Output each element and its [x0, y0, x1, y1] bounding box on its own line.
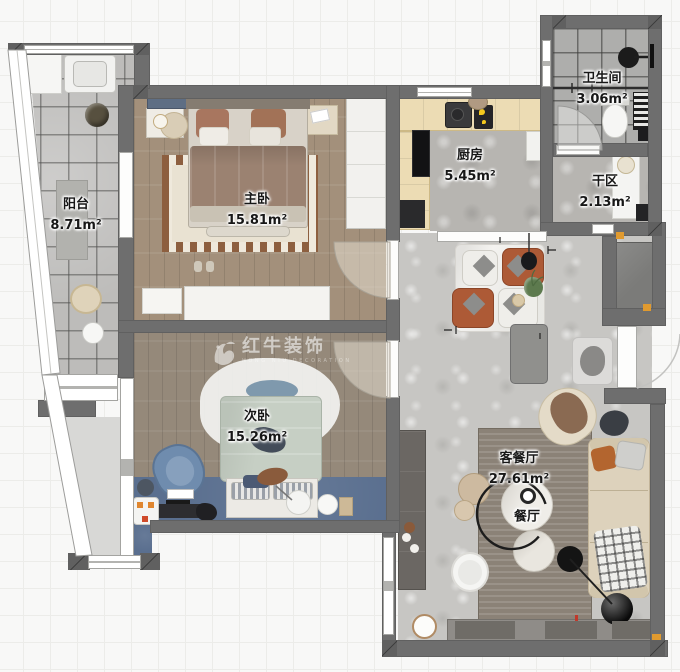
shower-drain	[618, 47, 639, 68]
kitchen-base-unit	[398, 200, 425, 228]
coffee-cup-2	[410, 544, 419, 553]
balcony-slider-door[interactable]	[119, 152, 133, 238]
label-kitchen: 厨房 5.45m²	[444, 145, 495, 187]
label-balcony: 阳台 8.71m²	[50, 194, 101, 236]
master-headboard	[186, 98, 310, 109]
window-balcony-sill	[44, 374, 118, 401]
nesting-table-small	[454, 500, 475, 521]
media-cabinet	[398, 430, 426, 590]
lounge-chair-inner	[458, 560, 482, 585]
label-living-name: 客餐厅	[489, 448, 549, 469]
laundry-sink-basin	[73, 61, 107, 87]
second-papers	[167, 489, 194, 499]
master-pillow-white-left	[199, 127, 229, 146]
dining-centerpiece-plant	[524, 277, 543, 297]
sofa-seat-line	[590, 490, 648, 491]
dining-plate	[512, 294, 525, 307]
laundry-cabinet	[16, 54, 62, 94]
second-ball-lamp	[317, 494, 338, 515]
window-bath-left	[542, 40, 551, 87]
wall-second-bottom	[150, 520, 400, 533]
tv-console-module-1	[455, 621, 515, 639]
label-dry-area-area: 2.13m²	[579, 192, 630, 213]
niche-marker-bottom	[643, 304, 651, 311]
pet-bed-blob	[580, 346, 605, 376]
coffee-table-small	[513, 530, 555, 572]
label-master: 主卧 15.81m²	[227, 189, 287, 231]
label-master-area: 15.81m²	[227, 210, 287, 231]
corner-bath-tl	[553, 15, 566, 29]
floor-lamp-ball	[557, 546, 583, 572]
corner-dry-br	[648, 222, 662, 236]
kitchen-slider-door[interactable]	[437, 231, 547, 242]
label-second-name: 次卧	[227, 406, 287, 427]
label-kitchen-area: 5.45m²	[444, 166, 495, 187]
kitchen-sink-basin	[451, 108, 464, 121]
label-bathroom: 卫生间 3.06m²	[576, 68, 627, 110]
balcony-side-table	[82, 322, 104, 344]
label-bathroom-name: 卫生间	[576, 68, 627, 89]
wall-top	[133, 85, 553, 99]
second-stool-dark	[137, 479, 154, 496]
label-living-area: 27.61m²	[489, 469, 549, 490]
sofa-pillow-rust	[590, 445, 618, 472]
master-pillow-white-right	[249, 127, 281, 146]
label-kitchen-name: 厨房	[444, 145, 495, 166]
corner-alcove-left	[68, 553, 90, 570]
master-lamp-left	[153, 114, 168, 129]
stove-flame-icon	[479, 109, 485, 115]
window-master-top	[417, 87, 472, 97]
window-balcony-top	[24, 45, 134, 54]
label-second: 次卧 15.26m²	[227, 406, 287, 448]
window-alcove-bottom	[88, 555, 141, 569]
label-balcony-area: 8.71m²	[50, 215, 101, 236]
niche-marker-top	[616, 232, 624, 239]
label-balcony-name: 阳台	[50, 194, 101, 215]
window-alcove-east	[120, 378, 134, 557]
corner-top-master	[133, 85, 148, 99]
master-dresser	[184, 286, 330, 322]
wall-east-1	[386, 85, 400, 242]
alcove-floor	[56, 417, 122, 557]
corner-balcony-tr	[135, 43, 150, 55]
tv-indicator	[575, 615, 578, 621]
floor-stool	[412, 614, 437, 639]
wall-right-lower	[650, 404, 665, 657]
second-monitor	[166, 500, 190, 504]
wall-bottom	[382, 640, 668, 657]
label-dining: 餐厅	[514, 507, 540, 528]
sofa-pillow-gray	[614, 440, 647, 471]
label-dry-area: 干区 2.13m²	[579, 171, 630, 213]
corner-bath-tr	[648, 15, 662, 29]
tv-console-module-3	[612, 621, 652, 639]
label-bathroom-area: 3.06m²	[576, 89, 627, 110]
corner-bottom-left	[382, 640, 397, 657]
entry-door[interactable]	[617, 326, 637, 388]
dry-area-opening	[592, 224, 614, 234]
bathroom-door[interactable]	[556, 145, 600, 155]
kitchen-fridge	[412, 130, 430, 177]
wall-niche-bottom	[602, 308, 666, 326]
corner-balcony-tl	[8, 43, 23, 55]
master-wardrobe	[346, 97, 386, 229]
tv-console-module-2	[545, 621, 597, 639]
label-second-area: 15.26m²	[227, 427, 287, 448]
cat-figure	[196, 503, 217, 521]
wall-below-entry-door	[604, 388, 666, 404]
sofa-plaid-blanket	[593, 525, 648, 593]
window-living-left	[383, 537, 394, 635]
master-door[interactable]	[387, 240, 399, 300]
balcony-chair	[70, 284, 102, 314]
hall-cabinet	[510, 324, 548, 384]
coffee-table-decor	[520, 488, 536, 504]
master-slippers	[194, 261, 202, 272]
robot-toy-eyes	[137, 502, 143, 508]
label-master-name: 主卧	[227, 189, 287, 210]
wall-right-upper	[648, 15, 662, 236]
wall-balcony-bottom	[38, 400, 96, 417]
corner-bottom-right	[650, 640, 665, 657]
label-dining-name: 餐厅	[514, 507, 540, 528]
second-door[interactable]	[387, 340, 399, 398]
coffee-cup-1	[402, 533, 411, 542]
label-dry-area-name: 干区	[579, 171, 630, 192]
label-living: 客餐厅 27.61m²	[489, 448, 549, 490]
second-floor-lamp	[286, 490, 311, 515]
entry-niche-floor	[616, 242, 654, 310]
wall-bath-top	[553, 15, 662, 29]
balcony-plant	[85, 103, 109, 127]
wall-east-3	[386, 396, 400, 533]
second-nightstand	[339, 497, 353, 516]
wall-east-2	[386, 298, 400, 342]
corner-alcove-right	[140, 553, 160, 570]
floor-plan: 红牛装饰 HONG NIU DECORATION 阳台 8.71m² 主卧 15…	[0, 0, 680, 672]
master-stool	[142, 288, 182, 314]
wall-bedroom-divider	[118, 320, 400, 333]
bathroom-radiator	[633, 92, 649, 130]
coffee-pot	[404, 522, 415, 533]
